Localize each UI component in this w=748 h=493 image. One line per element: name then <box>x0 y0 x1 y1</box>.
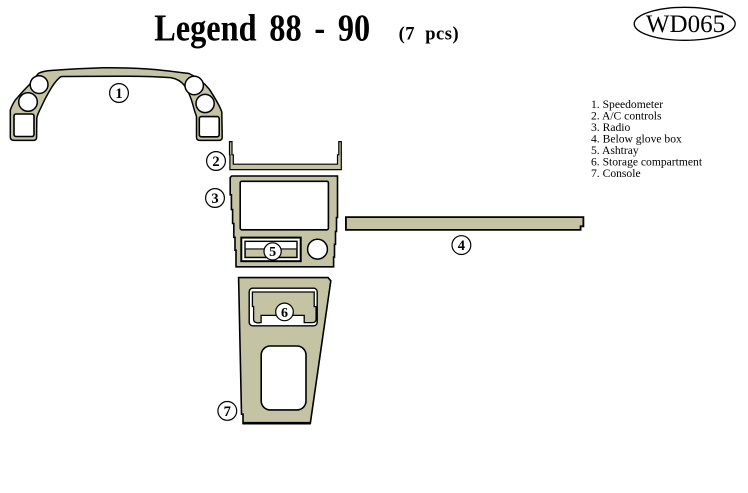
svg-text:2: 2 <box>212 154 219 170</box>
svg-text:Legend 88 - 90: Legend 88 - 90 <box>154 6 370 49</box>
svg-text:1: 1 <box>115 86 122 102</box>
svg-text:(7 pcs): (7 pcs) <box>399 25 460 45</box>
svg-text:6: 6 <box>281 306 288 321</box>
svg-text:4: 4 <box>458 238 465 254</box>
svg-text:3: 3 <box>211 191 218 207</box>
svg-text:7. Console: 7. Console <box>591 167 641 180</box>
svg-text:7: 7 <box>224 404 231 420</box>
svg-text:WD065: WD065 <box>646 11 725 38</box>
svg-text:5: 5 <box>269 245 276 260</box>
